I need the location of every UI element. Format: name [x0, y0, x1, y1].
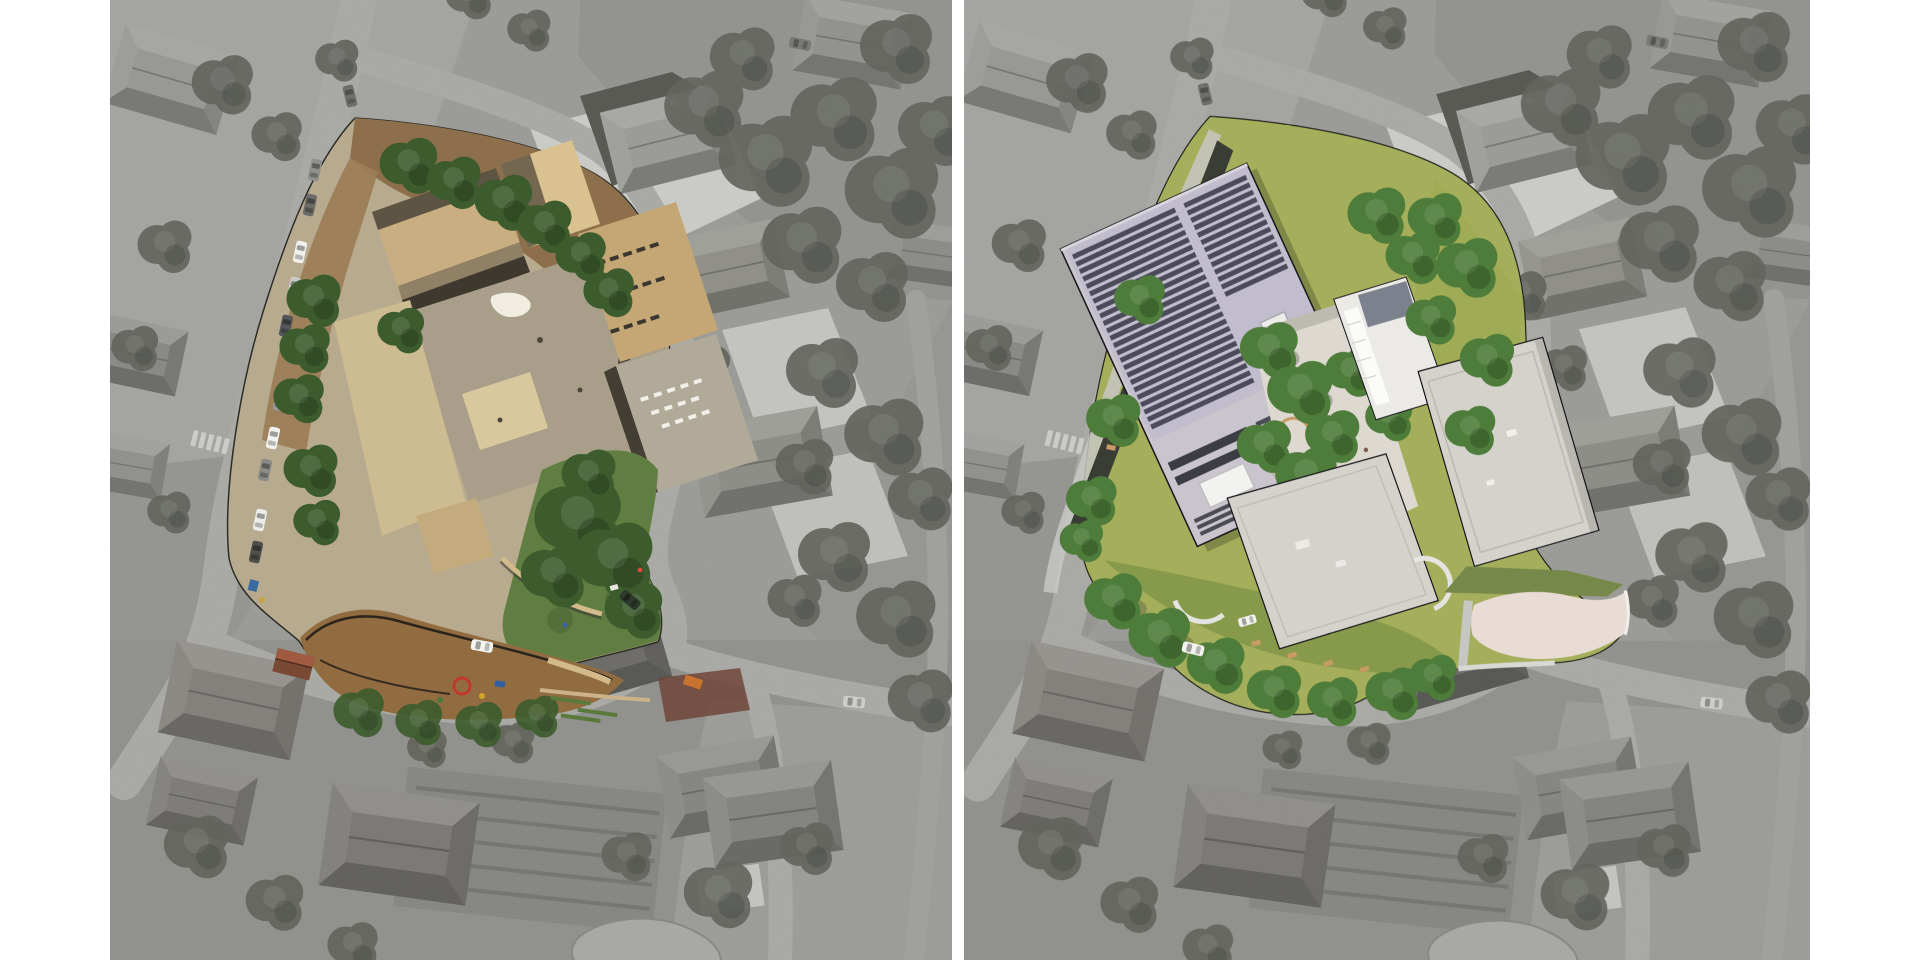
existing-site-panel: [110, 0, 952, 960]
plaza-path: [1462, 601, 1468, 669]
aerial-comparison: STOP: [0, 0, 1920, 960]
proposed-site-panel: [964, 0, 1810, 960]
yellow-bin: [259, 597, 265, 603]
